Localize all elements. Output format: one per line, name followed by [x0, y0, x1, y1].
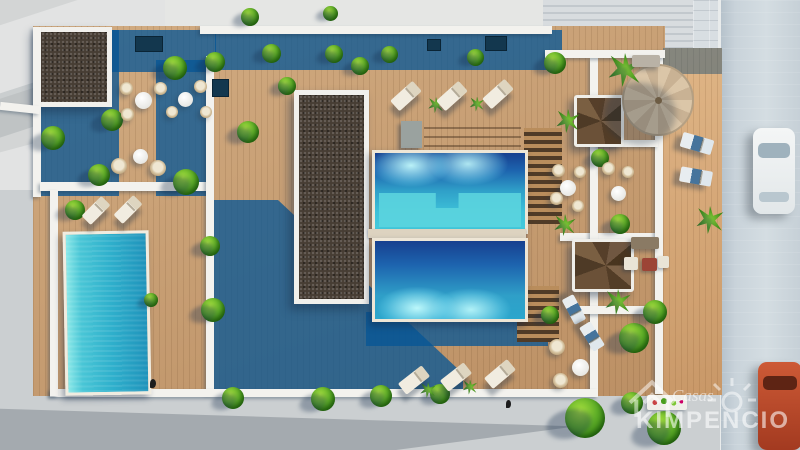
- aerial-render-scene: Casas KIMPENCIO: [0, 0, 800, 450]
- object-layer: [0, 0, 800, 450]
- ottoman: [642, 258, 657, 271]
- bush: [144, 293, 158, 307]
- sofa: [632, 55, 660, 67]
- lounger: [579, 321, 605, 352]
- sofa: [631, 237, 659, 249]
- chair: [622, 166, 634, 178]
- planter: [647, 395, 687, 410]
- chair: [154, 82, 167, 95]
- palm: [556, 109, 580, 133]
- bush: [565, 398, 605, 438]
- table: [560, 180, 576, 196]
- lounger: [82, 196, 111, 225]
- chair: [200, 106, 212, 118]
- bush: [200, 236, 220, 256]
- bush: [619, 323, 649, 353]
- table: [572, 359, 589, 376]
- table: [611, 186, 626, 201]
- bush: [88, 164, 110, 186]
- chair: [120, 82, 133, 95]
- bush: [163, 56, 187, 80]
- palm: [554, 214, 576, 236]
- bush: [323, 6, 338, 21]
- lounger: [680, 131, 715, 154]
- bird: [150, 379, 156, 388]
- chair: [574, 166, 586, 178]
- chair: [194, 80, 207, 93]
- bush: [647, 411, 681, 445]
- bush: [381, 46, 398, 63]
- bush: [467, 49, 484, 66]
- vent: [427, 39, 441, 51]
- bush: [173, 169, 199, 195]
- ottoman: [658, 256, 669, 268]
- bush: [643, 300, 667, 324]
- palm: [605, 289, 631, 315]
- lounger: [390, 81, 422, 111]
- bush: [311, 387, 335, 411]
- ottoman: [624, 257, 638, 270]
- bush: [351, 57, 369, 75]
- bush: [370, 385, 392, 407]
- bush: [201, 298, 225, 322]
- table: [135, 92, 152, 109]
- chair: [552, 164, 565, 177]
- chair: [572, 200, 584, 212]
- bush: [101, 109, 123, 131]
- vent: [212, 79, 229, 97]
- lounger: [484, 359, 516, 389]
- chair: [121, 108, 134, 121]
- chair: [166, 106, 178, 118]
- bush: [41, 126, 65, 150]
- table: [178, 92, 193, 107]
- bush: [205, 52, 225, 72]
- chair: [553, 373, 568, 388]
- bird: [506, 400, 511, 408]
- lounger: [436, 81, 468, 111]
- bush: [541, 306, 559, 324]
- bush: [278, 77, 296, 95]
- chair: [111, 158, 127, 174]
- palm: [696, 206, 724, 234]
- bush: [621, 392, 643, 414]
- bush: [544, 52, 566, 74]
- bush: [262, 44, 281, 63]
- vent: [485, 36, 507, 51]
- chair: [549, 339, 565, 355]
- lounger: [114, 195, 143, 224]
- palm: [463, 380, 478, 395]
- bush: [325, 45, 343, 63]
- lounger: [562, 294, 587, 325]
- bush: [222, 387, 244, 409]
- vent: [135, 36, 163, 52]
- lounger: [679, 166, 713, 186]
- chair: [602, 162, 615, 175]
- chair: [150, 160, 166, 176]
- bush: [241, 8, 259, 26]
- table: [133, 149, 148, 164]
- chair: [550, 192, 563, 205]
- bush: [610, 214, 630, 234]
- bush: [237, 121, 259, 143]
- lounger: [482, 79, 514, 109]
